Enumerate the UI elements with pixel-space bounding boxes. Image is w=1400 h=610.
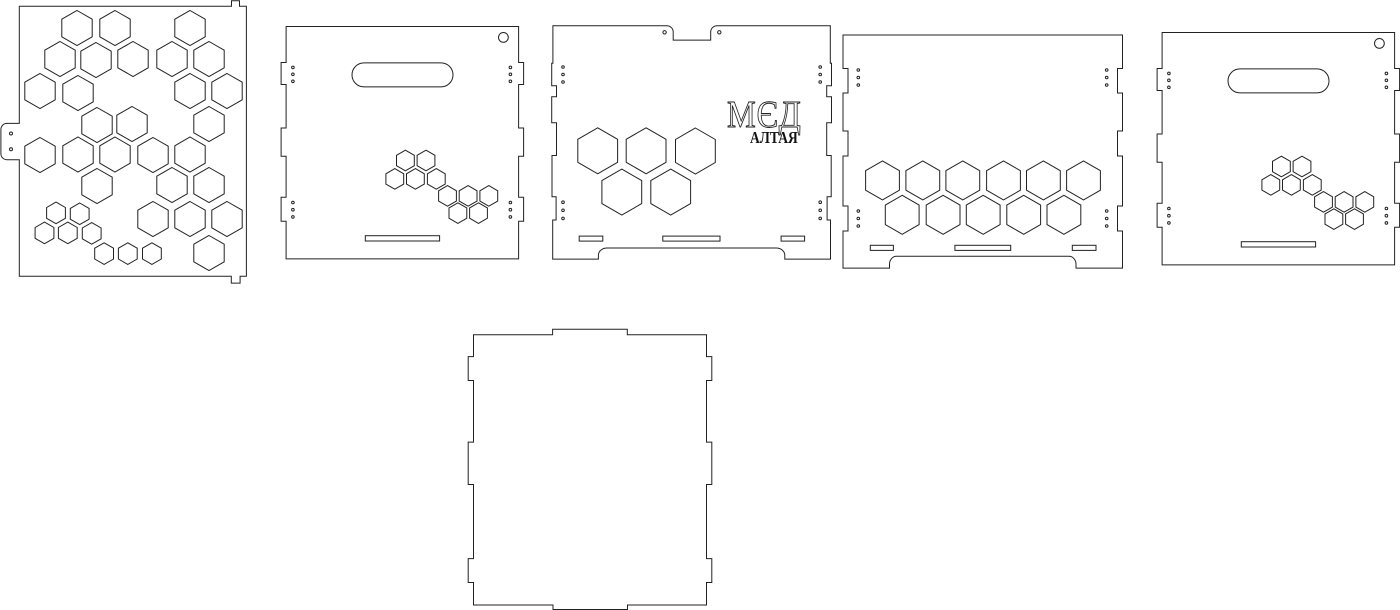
svg-text:АЛТАЯ: АЛТАЯ — [750, 130, 798, 147]
